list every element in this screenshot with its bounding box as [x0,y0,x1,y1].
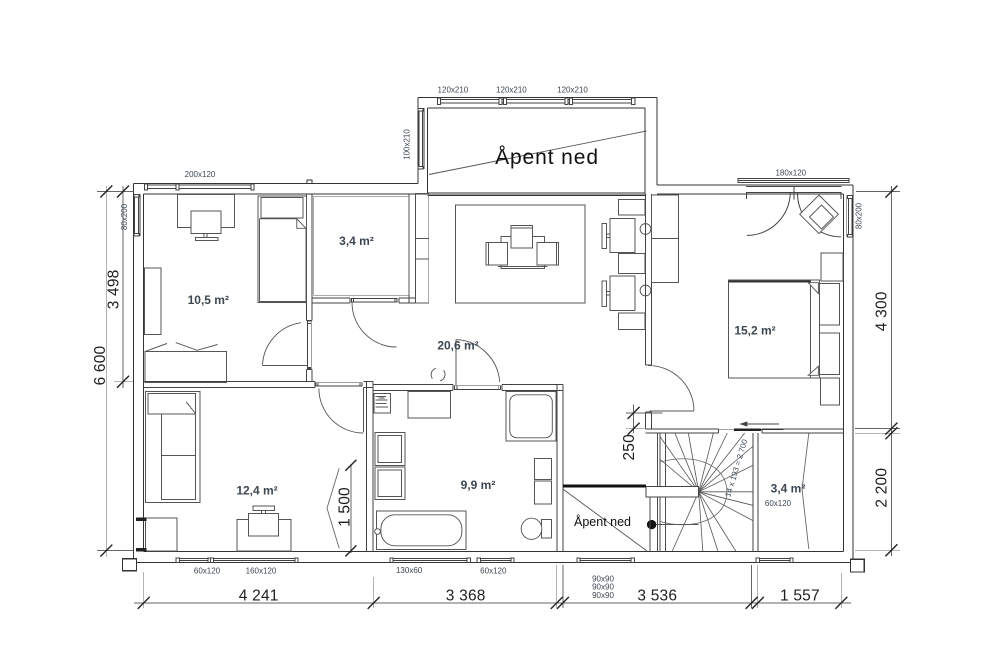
svg-text:60x120: 60x120 [765,499,792,508]
svg-text:15,2 m²: 15,2 m² [734,324,775,338]
svg-text:1 557: 1 557 [780,587,820,604]
svg-text:Åpent ned: Åpent ned [495,146,599,169]
svg-text:250: 250 [621,434,638,461]
svg-text:130x60: 130x60 [396,566,423,575]
svg-text:9,9 m²: 9,9 m² [461,478,496,492]
svg-text:3 498: 3 498 [106,270,123,310]
svg-text:vask: vask [378,396,385,400]
svg-text:3 368: 3 368 [446,587,486,604]
svg-text:120x210: 120x210 [557,86,588,95]
svg-text:60x120: 60x120 [480,566,507,575]
svg-text:6 600: 6 600 [92,345,109,385]
svg-text:4 241: 4 241 [239,587,279,604]
svg-text:200x120: 200x120 [185,170,216,179]
svg-text:120x210: 120x210 [496,86,527,95]
svg-text:60x120: 60x120 [194,567,221,576]
svg-text:1 500: 1 500 [336,487,353,527]
svg-text:3 536: 3 536 [637,587,677,604]
svg-text:3,4 m²: 3,4 m² [339,234,374,248]
svg-text:90x90: 90x90 [592,591,614,600]
svg-text:160x120: 160x120 [246,567,277,576]
svg-text:Åpent ned: Åpent ned [574,514,631,529]
svg-text:80x200: 80x200 [855,202,864,229]
svg-text:4 300: 4 300 [873,291,890,331]
svg-text:20,6 m²: 20,6 m² [437,339,478,353]
svg-text:3,4 m²: 3,4 m² [771,482,806,496]
svg-text:120x210: 120x210 [438,86,469,95]
svg-text:180x120: 180x120 [775,169,806,178]
svg-text:2 200: 2 200 [873,468,890,508]
svg-text:10,5 m²: 10,5 m² [188,293,229,307]
svg-text:100x210: 100x210 [403,129,412,160]
svg-text:12,4 m²: 12,4 m² [236,484,277,498]
svg-text:80x200: 80x200 [120,203,129,230]
